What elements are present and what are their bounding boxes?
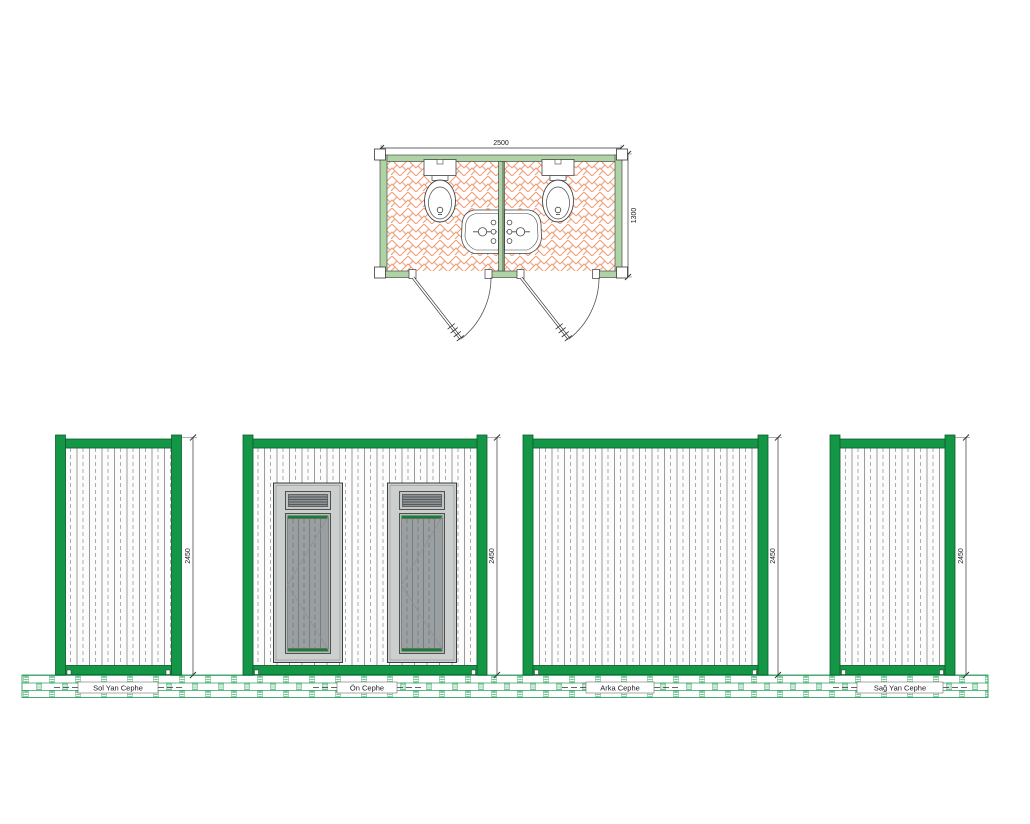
door-swing-left	[413, 278, 491, 342]
corner-post-right	[758, 435, 768, 675]
bottom-rail	[533, 666, 758, 675]
corner-post-left	[243, 435, 253, 675]
architectural-drawing: 2500 1300	[0, 0, 1030, 824]
siding-panel	[840, 448, 945, 666]
floor-plan: 2500 1300	[375, 140, 639, 341]
top-rail	[66, 439, 172, 448]
plan-depth-dimension: 1300	[623, 151, 638, 280]
top-rail	[533, 439, 758, 448]
foundation-strip	[22, 675, 988, 698]
plan-width-dim-text: 2500	[493, 140, 509, 147]
elevation-sag-yan-cephe: 2450	[830, 435, 970, 679]
washbasin-symbol-left	[462, 210, 499, 254]
door-elevation-right	[388, 483, 457, 663]
elevation-arka-cephe: 2450	[523, 435, 782, 679]
top-rail	[253, 439, 477, 448]
corner-post-left	[56, 435, 66, 675]
corner-post-right	[945, 435, 955, 675]
wall-partition	[499, 162, 505, 272]
bottom-rail	[66, 666, 172, 675]
toilet-symbol-left	[424, 160, 456, 223]
bottom-rail	[253, 666, 477, 675]
toilet-symbol-right	[542, 160, 574, 223]
height-dimension: 2450	[955, 435, 970, 679]
height-dimension: 2450	[182, 435, 198, 679]
top-rail	[840, 439, 945, 448]
door-swing-right	[521, 278, 599, 342]
height-dim-text: 2450	[958, 548, 965, 564]
label-text: Ön Cephe	[350, 684, 384, 693]
label-text: Arka Cephe	[600, 684, 640, 693]
plan-depth-dim-text: 1300	[631, 208, 638, 224]
height-dimension: 2450	[768, 435, 782, 679]
label-text: Sağ Yan Cephe	[874, 684, 926, 693]
corner-post-right	[172, 435, 182, 675]
corner-post-right	[477, 435, 487, 675]
elevation-on-cephe: 2450	[243, 435, 501, 679]
drawing-canvas: 2500 1300	[0, 0, 1030, 824]
height-dimension: 2450	[487, 435, 501, 679]
siding-panel	[533, 448, 758, 666]
wall-right	[615, 155, 622, 278]
wall-left	[380, 155, 387, 278]
height-dim-text: 2450	[489, 548, 496, 564]
siding-panel	[66, 448, 172, 666]
corner-post-left	[523, 435, 533, 675]
plan-width-dimension: 2500	[378, 140, 624, 152]
wall-top	[380, 155, 622, 162]
height-dim-text: 2450	[185, 548, 192, 564]
door-elevation-left	[274, 483, 343, 663]
washbasin-symbol-right	[505, 210, 542, 254]
elevation-sol-yan-cephe: 2450	[56, 435, 198, 679]
label-text: Sol Yan Cephe	[93, 684, 143, 693]
wall-bottom-mid	[491, 271, 521, 278]
bottom-rail	[840, 666, 945, 675]
corner-post-left	[830, 435, 840, 675]
height-dim-text: 2450	[770, 548, 777, 564]
